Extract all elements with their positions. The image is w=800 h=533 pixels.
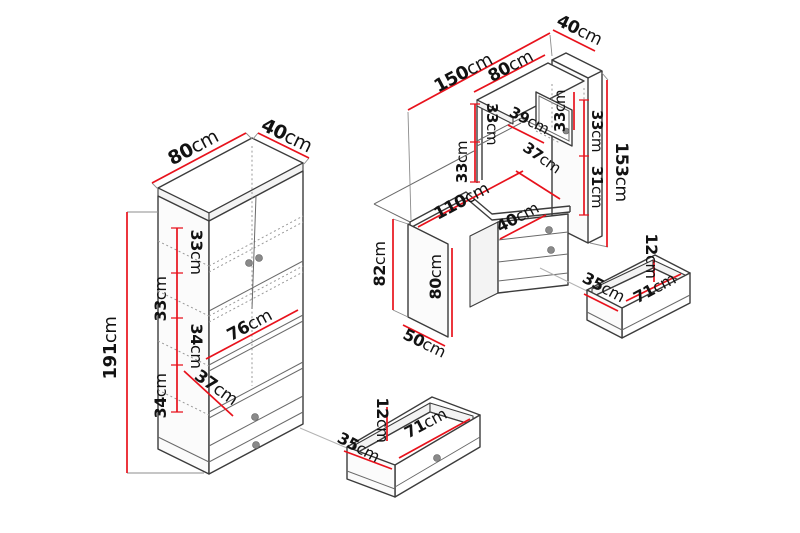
drawer-detail-left-drawing: 12cm 35cm 71cm <box>334 397 480 497</box>
label-mirror-height: 33cm <box>551 90 569 132</box>
label-drawer-r-height: 12cm <box>642 233 661 278</box>
label-side-panel-outer: 82cm <box>370 241 389 286</box>
label-cabinet-height: 191cm <box>100 316 121 379</box>
drawer-detail-right-drawing: 12cm 35cm 71cm <box>579 233 690 338</box>
label-cabinet-section-2: 33cm <box>151 276 170 321</box>
label-side-panel-inner: 80cm <box>426 254 445 299</box>
ext-line-desk-height <box>590 73 608 247</box>
bookcase-door-knob-left <box>246 260 253 267</box>
furniture-dimension-diagram: 80cm 40cm 191cm 33cm 33cm 34cm 34cm 76cm… <box>0 0 800 533</box>
diagram-canvas: 80cm 40cm 191cm 33cm 33cm 34cm 34cm 76cm… <box>0 0 800 533</box>
drawer-l-knob <box>434 455 441 462</box>
label-cabinet-section-3: 34cm <box>187 323 206 368</box>
desktop-left-end-edge <box>374 204 410 222</box>
ext-line-side-panel <box>393 219 408 317</box>
pedestal-knob-top <box>546 227 553 234</box>
label-hutch-left-upper: 33cm <box>483 103 501 145</box>
desk-back-panel-rear-edge <box>588 71 602 243</box>
bookcase-door-knob-right <box>256 255 263 262</box>
bookcase-drawer-knob-bottom <box>253 442 260 449</box>
label-drawer-l-height: 12cm <box>373 397 392 442</box>
label-desk-height: 153cm <box>611 142 631 201</box>
label-hutch-left-lower: 33cm <box>453 141 471 183</box>
pedestal-knob-bottom <box>548 247 555 254</box>
label-desktop-width: 110cm <box>431 179 493 225</box>
label-cabinet-section-4: 34cm <box>151 373 170 418</box>
label-right-upper: 33cm <box>588 110 606 152</box>
label-right-lower: 31cm <box>588 166 606 208</box>
pedestal-side-face <box>470 222 498 307</box>
label-back-panel-depth: 40cm <box>553 11 605 50</box>
bookcase-drawing: 80cm 40cm 191cm 33cm 33cm 34cm 34cm 76cm… <box>100 114 316 474</box>
label-cabinet-section-1: 33cm <box>187 229 206 274</box>
bookcase-drawer-knob-top <box>252 414 259 421</box>
